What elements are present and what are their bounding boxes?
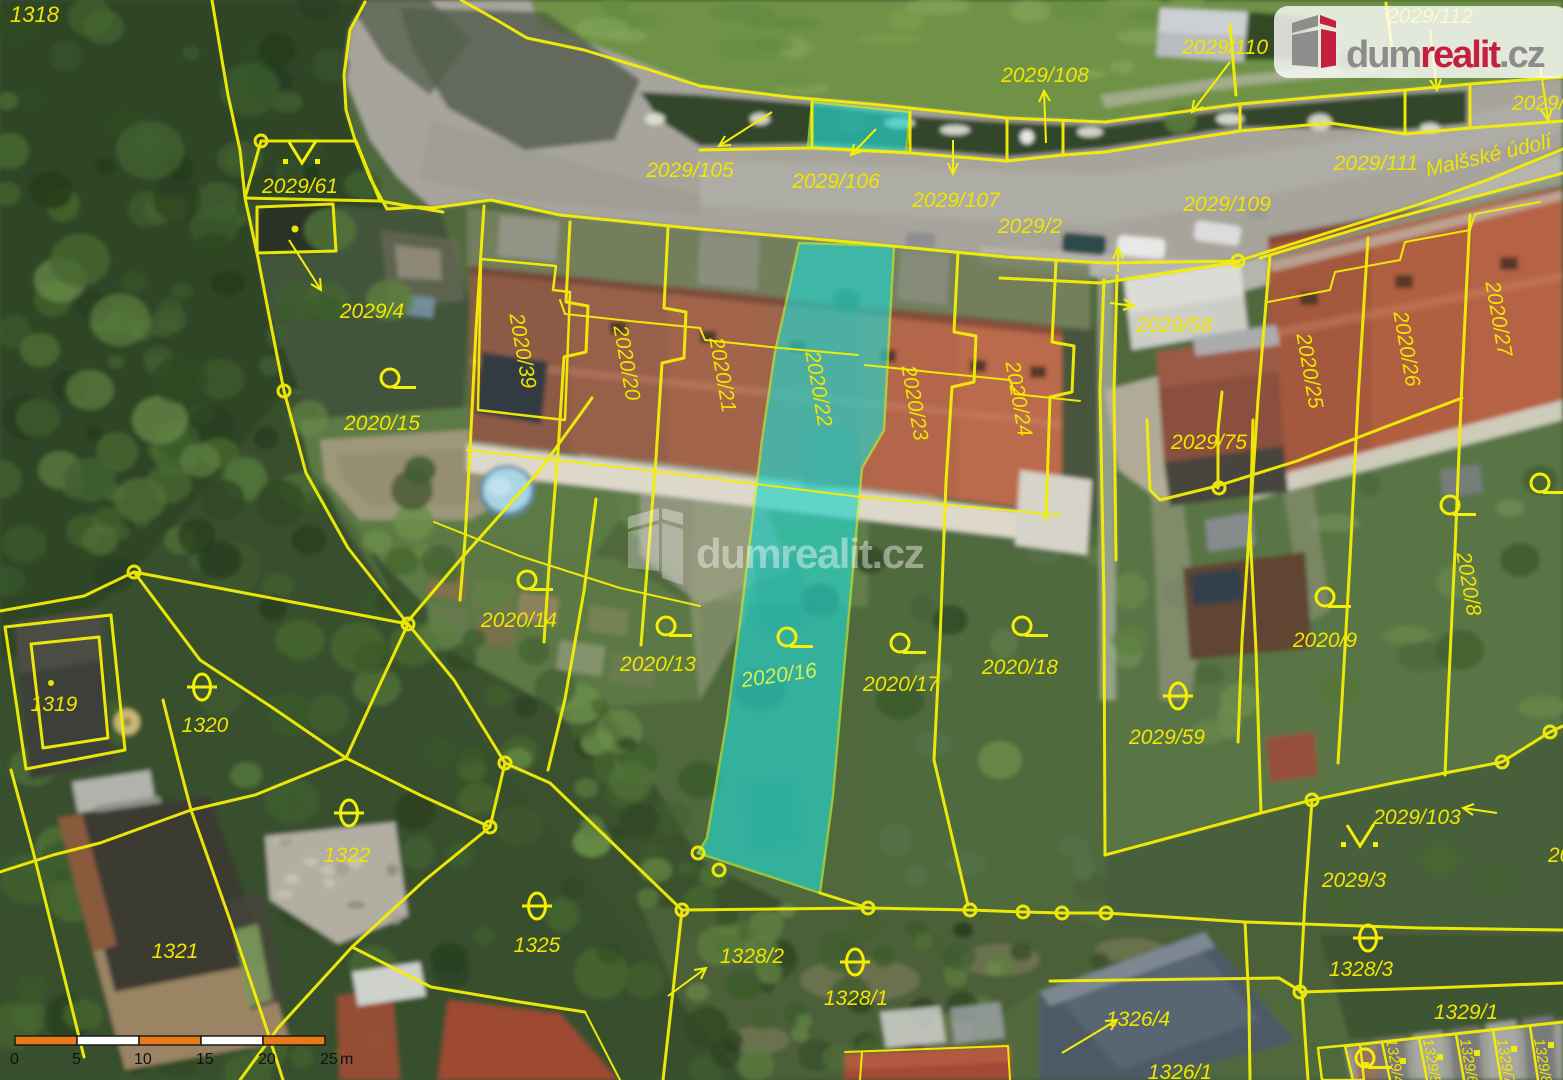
svg-text:m: m bbox=[340, 1051, 353, 1068]
svg-text:1326/4: 1326/4 bbox=[1106, 1008, 1170, 1031]
svg-text:1328/1: 1328/1 bbox=[824, 987, 888, 1010]
svg-text:1322: 1322 bbox=[324, 844, 371, 867]
svg-text:2029/1: 2029/1 bbox=[1511, 92, 1563, 115]
svg-text:1321: 1321 bbox=[152, 940, 199, 963]
svg-text:20: 20 bbox=[258, 1051, 276, 1068]
svg-text:1325: 1325 bbox=[514, 934, 561, 957]
svg-text:2029/59: 2029/59 bbox=[1128, 726, 1205, 749]
svg-text:2020/13: 2020/13 bbox=[619, 653, 696, 676]
svg-text:2029/103: 2029/103 bbox=[1372, 806, 1461, 829]
svg-text:1328/2: 1328/2 bbox=[720, 945, 785, 968]
svg-text:1328/3: 1328/3 bbox=[1329, 958, 1394, 981]
svg-text:1320: 1320 bbox=[182, 714, 229, 737]
svg-text:2029/108: 2029/108 bbox=[1000, 64, 1089, 87]
svg-text:2029/109: 2029/109 bbox=[1182, 193, 1271, 216]
svg-text:1318: 1318 bbox=[10, 2, 60, 27]
svg-text:2020/15: 2020/15 bbox=[343, 412, 420, 435]
svg-text:dumrealit.cz: dumrealit.cz bbox=[696, 530, 924, 577]
svg-text:202: 202 bbox=[1547, 844, 1563, 867]
svg-text:2029/4: 2029/4 bbox=[339, 300, 404, 323]
svg-text:1319: 1319 bbox=[31, 693, 78, 716]
svg-text:2029/2: 2029/2 bbox=[997, 215, 1063, 238]
svg-text:2029/58: 2029/58 bbox=[1135, 314, 1212, 337]
svg-text:25: 25 bbox=[320, 1051, 338, 1068]
svg-text:dumrealit.cz: dumrealit.cz bbox=[1346, 34, 1545, 76]
svg-text:2020/9: 2020/9 bbox=[1292, 629, 1358, 652]
svg-text:5: 5 bbox=[72, 1051, 81, 1068]
svg-text:2029/61: 2029/61 bbox=[261, 175, 338, 198]
svg-text:1329/1: 1329/1 bbox=[1434, 1001, 1498, 1024]
svg-text:2029/75: 2029/75 bbox=[1170, 431, 1247, 454]
svg-text:10: 10 bbox=[134, 1051, 152, 1068]
svg-text:2029/107: 2029/107 bbox=[911, 189, 1001, 212]
svg-text:2029/110: 2029/110 bbox=[1181, 36, 1268, 59]
svg-text:15: 15 bbox=[196, 1051, 214, 1068]
svg-text:2020/17: 2020/17 bbox=[862, 673, 940, 696]
svg-text:2029/3: 2029/3 bbox=[1321, 869, 1387, 892]
svg-text:1326/1: 1326/1 bbox=[1148, 1061, 1212, 1080]
svg-text:0: 0 bbox=[10, 1051, 19, 1068]
svg-text:2029/105: 2029/105 bbox=[645, 159, 734, 182]
svg-text:2029/106: 2029/106 bbox=[791, 170, 880, 193]
svg-text:2020/14: 2020/14 bbox=[480, 609, 557, 632]
svg-text:2020/18: 2020/18 bbox=[981, 656, 1058, 679]
svg-text:2029/111: 2029/111 bbox=[1333, 152, 1418, 175]
